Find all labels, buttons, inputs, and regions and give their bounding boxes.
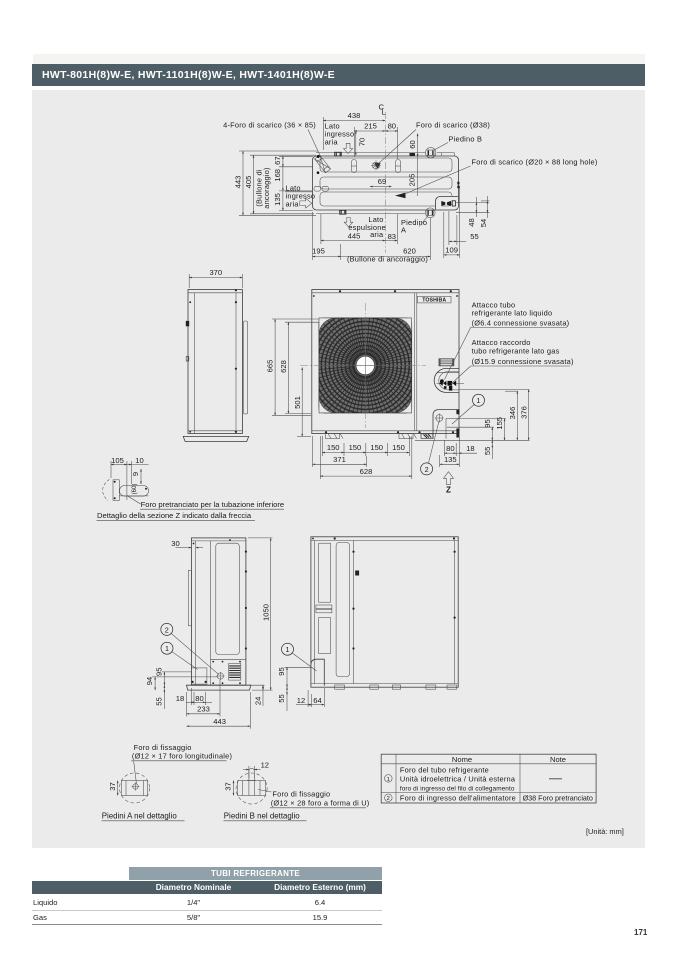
svg-text:37: 37 <box>224 782 233 790</box>
svg-text:refrigerante lato liquido: refrigerante lato liquido <box>472 309 553 318</box>
svg-text:150: 150 <box>370 443 383 452</box>
svg-text:ancoraggio): ancoraggio) <box>262 167 271 208</box>
svg-text:Piedino B: Piedino B <box>449 135 483 144</box>
svg-text:37: 37 <box>108 782 117 790</box>
svg-text:18: 18 <box>176 694 184 703</box>
svg-text:(Ø12 × 28 foro a forma di U): (Ø12 × 28 foro a forma di U) <box>271 799 370 808</box>
svg-text:95: 95 <box>155 668 164 676</box>
svg-text:60: 60 <box>408 140 417 148</box>
svg-text:tubo refrigerante lato gas: tubo refrigerante lato gas <box>472 347 560 356</box>
svg-text:18: 18 <box>466 444 474 453</box>
svg-text:370: 370 <box>209 268 222 277</box>
svg-text:1: 1 <box>477 396 481 405</box>
svg-text:Piedini A nel dettaglio: Piedini A nel dettaglio <box>102 811 178 820</box>
svg-text:Foro del tubo refrigerante: Foro del tubo refrigerante <box>400 766 489 775</box>
svg-text:(Ø15.9 connessione svasata): (Ø15.9 connessione svasata) <box>472 357 574 366</box>
svg-text:215: 215 <box>364 122 377 131</box>
svg-text:12: 12 <box>297 696 305 705</box>
svg-text:55: 55 <box>155 697 164 705</box>
svg-text:405: 405 <box>244 176 253 189</box>
svg-text:628: 628 <box>360 467 373 476</box>
svg-text:376: 376 <box>519 406 528 419</box>
svg-text:95: 95 <box>483 419 492 427</box>
svg-text:150: 150 <box>349 443 362 452</box>
svg-text:2: 2 <box>387 796 390 802</box>
svg-text:346: 346 <box>508 407 517 420</box>
svg-text:1: 1 <box>165 644 169 653</box>
svg-text:501: 501 <box>293 396 302 409</box>
svg-text:aria: aria <box>286 200 300 209</box>
svg-text:150: 150 <box>392 443 405 452</box>
svg-text:Foro di fissaggio: Foro di fissaggio <box>272 789 330 798</box>
svg-text:105: 105 <box>111 456 124 465</box>
svg-text:48: 48 <box>467 218 476 226</box>
svg-text:Dettaglio della sezione Z indi: Dettaglio della sezione Z indicato dalla… <box>97 511 252 520</box>
svg-text:64: 64 <box>313 696 321 705</box>
svg-text:443: 443 <box>213 717 226 726</box>
svg-text:80: 80 <box>446 444 454 453</box>
svg-text:1: 1 <box>387 777 390 783</box>
svg-text:135: 135 <box>444 455 457 464</box>
svg-text:665: 665 <box>266 360 275 373</box>
svg-text:1050: 1050 <box>261 604 270 621</box>
svg-text:135: 135 <box>273 193 282 206</box>
svg-text:30: 30 <box>171 539 179 548</box>
svg-text:70: 70 <box>358 138 367 146</box>
svg-text:(60): (60) <box>132 484 138 495</box>
svg-text:80: 80 <box>388 122 396 131</box>
svg-text:10: 10 <box>135 456 143 465</box>
svg-text:Unità idroelettrica / Unità es: Unità idroelettrica / Unità esterna <box>400 774 516 783</box>
svg-text:195: 195 <box>312 247 325 256</box>
svg-text:168: 168 <box>273 169 282 182</box>
svg-text:95: 95 <box>277 667 286 675</box>
svg-text:443: 443 <box>234 176 243 189</box>
svg-text:Piedini B nel dettaglio: Piedini B nel dettaglio <box>224 811 301 820</box>
svg-text:24: 24 <box>253 697 262 705</box>
svg-text:1: 1 <box>286 645 290 654</box>
svg-text:aria: aria <box>325 138 339 147</box>
svg-text:94: 94 <box>145 677 154 685</box>
svg-text:2: 2 <box>165 625 169 634</box>
svg-text:L: L <box>382 108 386 117</box>
svg-text:445: 445 <box>348 232 361 241</box>
svg-text:438: 438 <box>348 111 361 120</box>
svg-text:155: 155 <box>495 417 504 430</box>
svg-text:Note: Note <box>550 755 566 764</box>
svg-text:12: 12 <box>261 761 269 770</box>
svg-text:2: 2 <box>425 465 429 474</box>
svg-text:(Ø12 × 17 foro longitudinale): (Ø12 × 17 foro longitudinale) <box>132 752 232 761</box>
svg-text:Ø38 Foro pretranciato: Ø38 Foro pretranciato <box>523 793 593 802</box>
svg-text:TOSHIBA: TOSHIBA <box>422 298 446 304</box>
svg-text:233: 233 <box>197 705 210 714</box>
svg-text:aria: aria <box>370 230 384 239</box>
svg-text:Foro di ingresso dell'alimenta: Foro di ingresso dell'alimentatore <box>400 793 516 802</box>
svg-text:foro di ingresso del filo di c: foro di ingresso del filo di collegament… <box>400 785 515 792</box>
svg-text:(Ø6.4 connessione svasata): (Ø6.4 connessione svasata) <box>472 319 570 328</box>
svg-text:Foro pretranciato per la tubaz: Foro pretranciato per la tubazione infer… <box>141 500 285 509</box>
svg-text:55: 55 <box>277 694 286 702</box>
svg-text:9: 9 <box>131 472 140 476</box>
svg-text:4-Foro di scarico (36 × 85): 4-Foro di scarico (36 × 85) <box>223 121 316 130</box>
svg-text:80: 80 <box>195 694 203 703</box>
svg-text:A: A <box>401 226 406 235</box>
svg-text:Z: Z <box>446 486 451 495</box>
svg-text:69: 69 <box>378 177 386 186</box>
svg-text:83: 83 <box>388 232 396 241</box>
svg-text:Foro di scarico (Ø38): Foro di scarico (Ø38) <box>416 121 490 130</box>
svg-text:67: 67 <box>273 156 282 164</box>
svg-text:205: 205 <box>408 174 417 187</box>
svg-text:150: 150 <box>327 443 340 452</box>
svg-text:371: 371 <box>333 455 346 464</box>
svg-text:55: 55 <box>470 232 478 241</box>
svg-text:(Bullone di ancoraggio): (Bullone di ancoraggio) <box>347 255 428 264</box>
svg-text:109: 109 <box>445 245 458 254</box>
svg-text:54: 54 <box>479 219 488 227</box>
svg-text:Nome: Nome <box>452 755 472 764</box>
svg-text:Foro di fissaggio: Foro di fissaggio <box>134 743 192 752</box>
svg-text:628: 628 <box>279 360 288 373</box>
svg-text:55: 55 <box>483 447 492 455</box>
svg-text:Foro di scarico (Ø20 × 88 long: Foro di scarico (Ø20 × 88 long hole) <box>472 158 598 167</box>
